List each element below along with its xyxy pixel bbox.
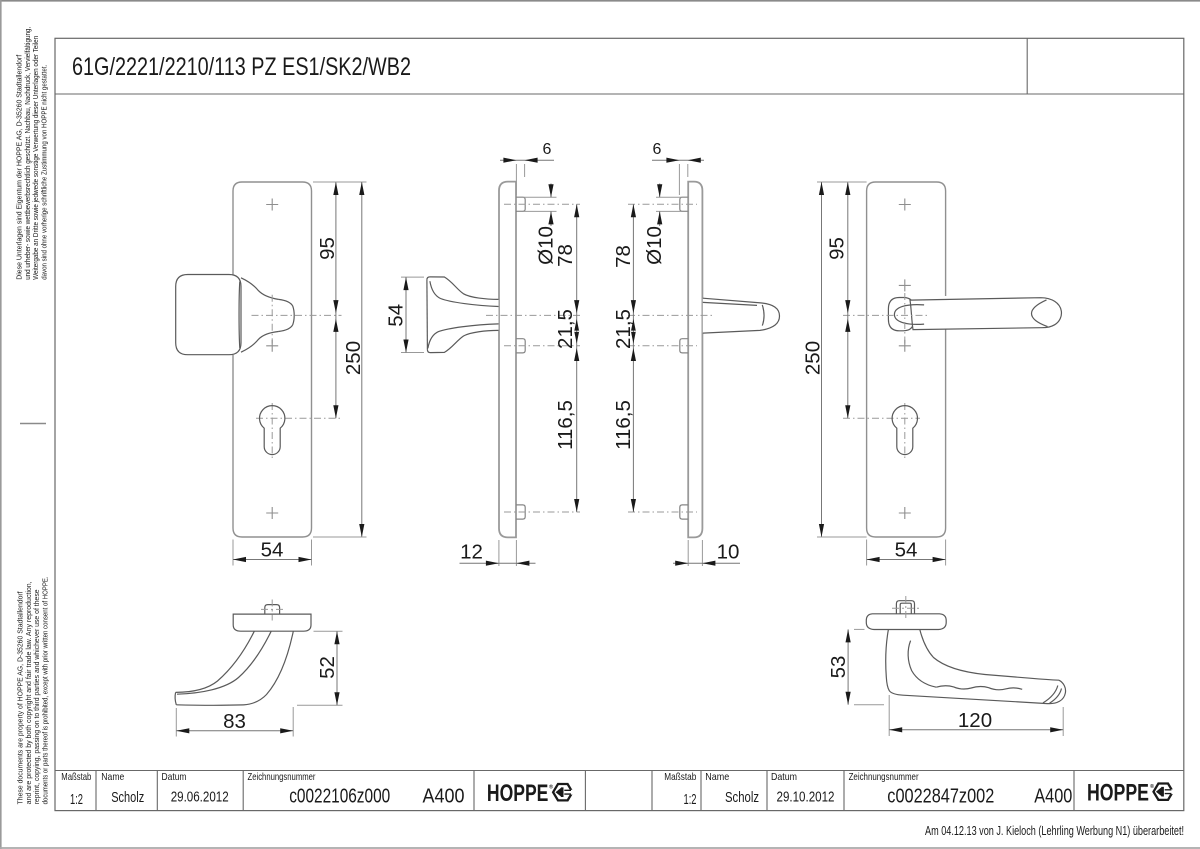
svg-text:83: 83 [223, 710, 246, 733]
svg-text:250: 250 [802, 341, 825, 375]
svg-text:A400: A400 [423, 786, 465, 808]
svg-text:120: 120 [958, 709, 992, 732]
svg-text:54: 54 [895, 539, 918, 562]
svg-text:10: 10 [717, 541, 740, 564]
svg-text:116,5: 116,5 [612, 400, 635, 450]
svg-text:6: 6 [653, 141, 662, 158]
svg-text:Scholz: Scholz [725, 789, 759, 806]
svg-text:95: 95 [826, 237, 849, 260]
svg-text:61G/2221/2210/113 PZ ES1/SK2/W: 61G/2221/2210/113 PZ ES1/SK2/WB2 [72, 53, 411, 81]
svg-text:Name: Name [101, 771, 124, 783]
svg-text:Name: Name [705, 771, 729, 783]
svg-text:Maßstab: Maßstab [61, 771, 91, 783]
svg-text:21,5: 21,5 [554, 309, 577, 349]
svg-text:52: 52 [316, 656, 339, 679]
svg-text:Ø10: Ø10 [643, 226, 666, 265]
svg-text:HOPPE: HOPPE [1087, 780, 1149, 807]
svg-text:Zeichnungsnummer: Zeichnungsnummer [248, 771, 316, 783]
svg-text:12: 12 [460, 541, 483, 564]
svg-text:29.10.2012: 29.10.2012 [777, 789, 835, 805]
svg-text:21,5: 21,5 [612, 309, 635, 349]
svg-text:95: 95 [316, 237, 339, 260]
svg-text:Datum: Datum [162, 771, 187, 783]
svg-text:Zeichnungsnummer: Zeichnungsnummer [849, 771, 919, 783]
svg-text:documents or parts thereof is: documents or parts thereof is prohibited… [41, 576, 50, 804]
svg-text:davon sind ohne vorherige schr: davon sind ohne vorherige schriftliche Z… [40, 65, 49, 280]
svg-text:Scholz: Scholz [111, 789, 144, 806]
svg-text:Datum: Datum [771, 771, 797, 783]
svg-text:c0022106z000: c0022106z000 [289, 786, 390, 808]
svg-text:116,5: 116,5 [554, 400, 577, 450]
svg-text:1:2: 1:2 [684, 792, 697, 808]
svg-text:78: 78 [612, 245, 635, 268]
svg-text:54: 54 [261, 539, 284, 562]
svg-text:250: 250 [342, 341, 365, 375]
svg-text:Am 04.12.13 von J. Kieloch (Le: Am 04.12.13 von J. Kieloch (Lehrling Wer… [925, 824, 1184, 838]
svg-text:53: 53 [827, 656, 850, 679]
svg-text:54: 54 [385, 304, 408, 327]
svg-text:A400: A400 [1034, 786, 1072, 808]
svg-text:HOPPE: HOPPE [487, 780, 549, 807]
svg-text:78: 78 [554, 244, 577, 267]
svg-text:29.06.2012: 29.06.2012 [171, 789, 229, 805]
svg-text:6: 6 [543, 141, 552, 158]
svg-text:Maßstab: Maßstab [664, 771, 696, 783]
svg-text:1:2: 1:2 [70, 792, 83, 808]
svg-text:c0022847z002: c0022847z002 [887, 786, 994, 808]
